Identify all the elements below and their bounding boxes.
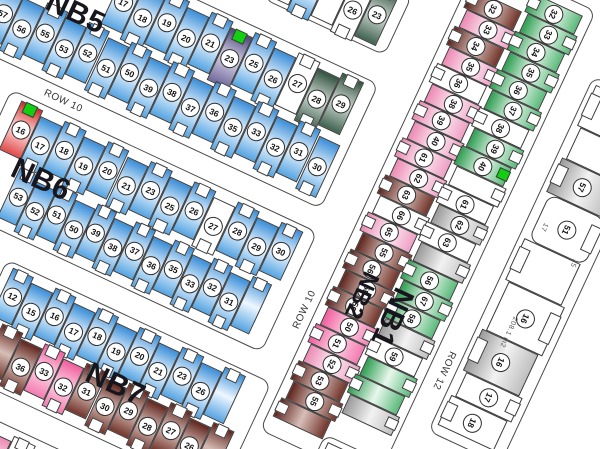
- plot-head-stub: [401, 263, 417, 278]
- plot-number: 18: [460, 410, 485, 435]
- plot-head-stub: [378, 0, 395, 1]
- plot-head-stub: [361, 215, 376, 230]
- plot-head-stub: [292, 364, 307, 379]
- plot-head-stub: [130, 437, 146, 449]
- plot-head-stub: [472, 110, 488, 125]
- plot-head-stub: [309, 326, 324, 341]
- plot-number: 51: [554, 217, 579, 242]
- plot-number: 16: [488, 350, 513, 375]
- plot-head-stub: [419, 225, 435, 240]
- plot-number: 17: [476, 385, 501, 410]
- plot-number: 26: [177, 433, 202, 449]
- plot-number: 29: [328, 91, 353, 116]
- plot-head-stub: [274, 401, 289, 416]
- plot-number: 23: [364, 2, 389, 27]
- plot-head-stub: [378, 178, 393, 193]
- plot-head-stub: [168, 0, 185, 9]
- plot-number: 30: [268, 239, 293, 264]
- plot-head-stub: [430, 66, 445, 81]
- plot-head-stub: [334, 23, 351, 39]
- plot-head-stub: [290, 3, 307, 19]
- plot-head-stub: [348, 377, 364, 392]
- plot-number: 57: [570, 175, 595, 200]
- plot-head-stub: [448, 29, 463, 44]
- plot-head-stub: [413, 103, 428, 118]
- plot-head-stub: [490, 72, 506, 87]
- plot-head-stub: [465, 0, 480, 7]
- plot-head-stub: [437, 186, 453, 201]
- plot-head-stub: [396, 141, 411, 156]
- plot-head-stub: [508, 34, 524, 49]
- plot-head-stub: [526, 0, 542, 11]
- plot-map: 2623171819202123252627282957565553525150…: [0, 0, 600, 449]
- plot-head-stub: [344, 252, 359, 267]
- plot-head-stub: [326, 289, 341, 304]
